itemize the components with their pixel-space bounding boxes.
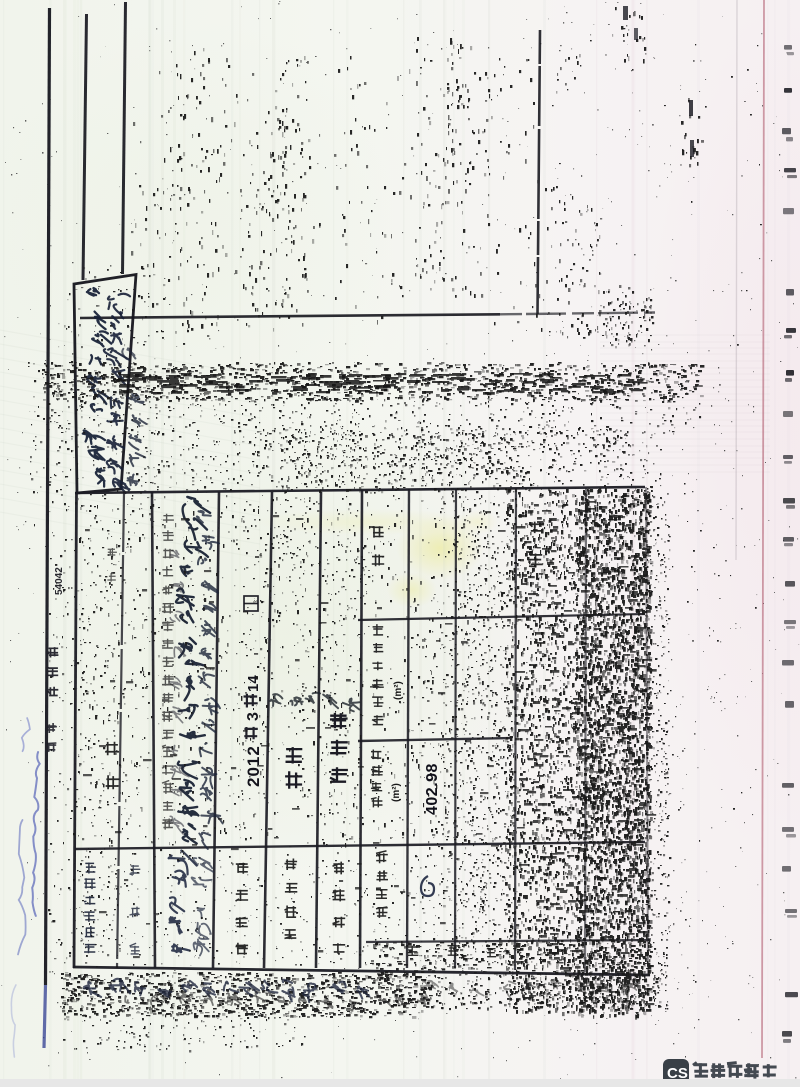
svg-text:402.98: 402.98 (424, 763, 441, 815)
svg-text:54042: 54042 (54, 567, 65, 595)
svg-text:14: 14 (245, 675, 262, 692)
svg-text:(m²): (m²) (391, 783, 402, 802)
svg-text:(m²): (m²) (393, 681, 404, 700)
